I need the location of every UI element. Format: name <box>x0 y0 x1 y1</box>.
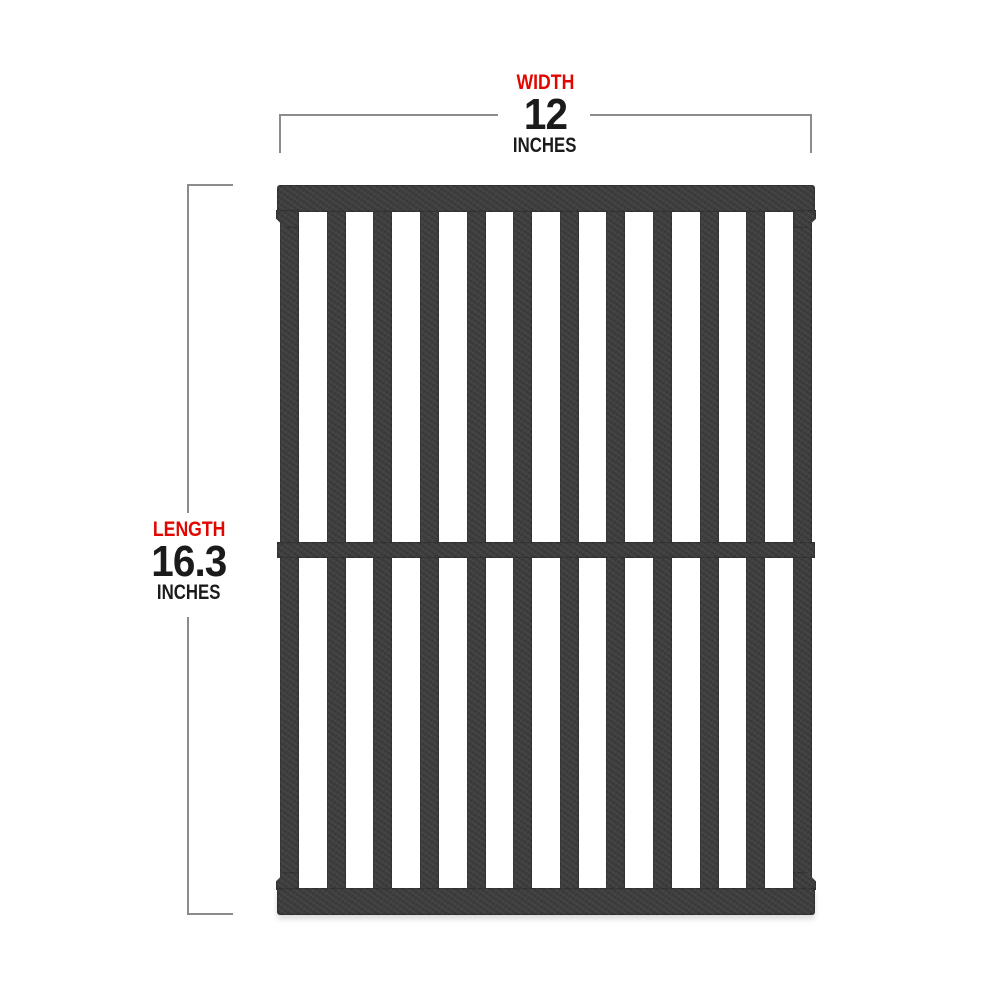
length-unit: INCHES <box>157 583 220 603</box>
length-line-top-tick <box>187 184 233 186</box>
width-dimension-labels: WIDTH 12 INCHES <box>425 72 665 156</box>
grate-tab-top-right <box>793 210 816 228</box>
grate-top-rail <box>277 185 815 212</box>
width-value: 12 <box>523 94 566 136</box>
length-line-bottom-tick <box>187 913 233 915</box>
length-line-top-segment <box>187 185 189 513</box>
product-dimension-diagram: WIDTH 12 INCHES LENGTH 16.3 INCHES <box>0 0 1000 1000</box>
length-value: 16.3 <box>151 541 226 583</box>
grate-middle-crossbar <box>277 542 815 558</box>
grill-grate-image <box>277 185 815 915</box>
grate-bottom-rail <box>277 888 815 915</box>
length-dimension-labels: LENGTH 16.3 INCHES <box>89 519 289 603</box>
width-line-left-tick <box>279 114 281 153</box>
length-line-bottom-segment <box>187 617 189 915</box>
width-unit: INCHES <box>513 136 576 156</box>
width-line-right-tick <box>810 114 812 153</box>
